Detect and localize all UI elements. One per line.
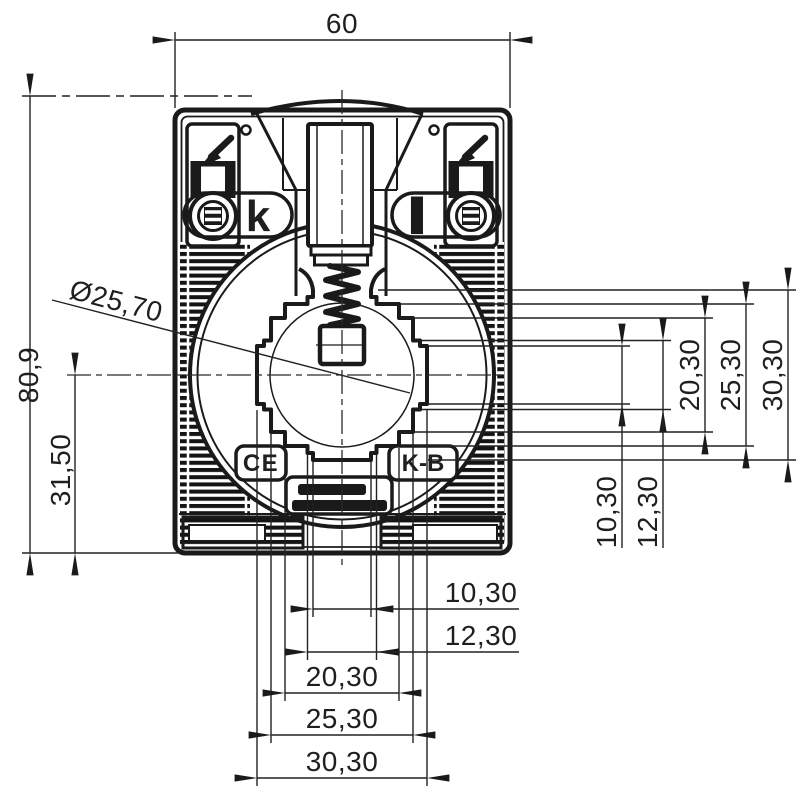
- terminal-window: [459, 167, 483, 192]
- nameplate-text-bar: [298, 484, 366, 495]
- dim-right-20-30: 20,30: [674, 339, 705, 412]
- current-transformer-drawing: k l: [0, 0, 800, 800]
- plunger-collar: [315, 255, 368, 265]
- dim-bottom-25-30: 25,30: [306, 703, 379, 734]
- pilot-hole-icon: [242, 126, 251, 135]
- ce-text: CE: [243, 450, 279, 477]
- dim-bottom-12-30: 12,30: [445, 620, 518, 651]
- dim-bottom-20-30: 20,30: [306, 661, 379, 692]
- dim-bottom-30-30: 30,30: [306, 746, 379, 777]
- dim-31-50-label: 31,50: [45, 434, 76, 507]
- nameplate-text-bar: [292, 500, 387, 511]
- terminal-label-l: l: [411, 192, 423, 241]
- terminal-label-k: k: [246, 192, 271, 241]
- dim-right-10-30: 10,30: [591, 476, 622, 549]
- screw-slot: [204, 207, 222, 225]
- dim-diameter-25-70-label: Ø25,70: [66, 274, 166, 328]
- dim-right-30-30: 30,30: [757, 339, 788, 412]
- pilot-hole-icon: [430, 126, 439, 135]
- ce-mark: CE: [236, 446, 286, 480]
- dim-width-60-label: 60: [326, 8, 358, 39]
- dim-right-12-30: 12,30: [632, 476, 663, 549]
- dim-bottom-10-30: 10,30: [445, 577, 518, 608]
- device-body: k l: [67, 90, 510, 565]
- dim-height-80-9-label: 80,9: [13, 347, 44, 404]
- screw-slot: [462, 207, 480, 225]
- technical-drawing-page: k l: [0, 0, 800, 800]
- dim-right-25-30: 25,30: [715, 339, 746, 412]
- terminal-window: [201, 167, 225, 192]
- logo-text: K-B: [402, 450, 445, 477]
- dim-31-50: 31,50: [45, 375, 76, 553]
